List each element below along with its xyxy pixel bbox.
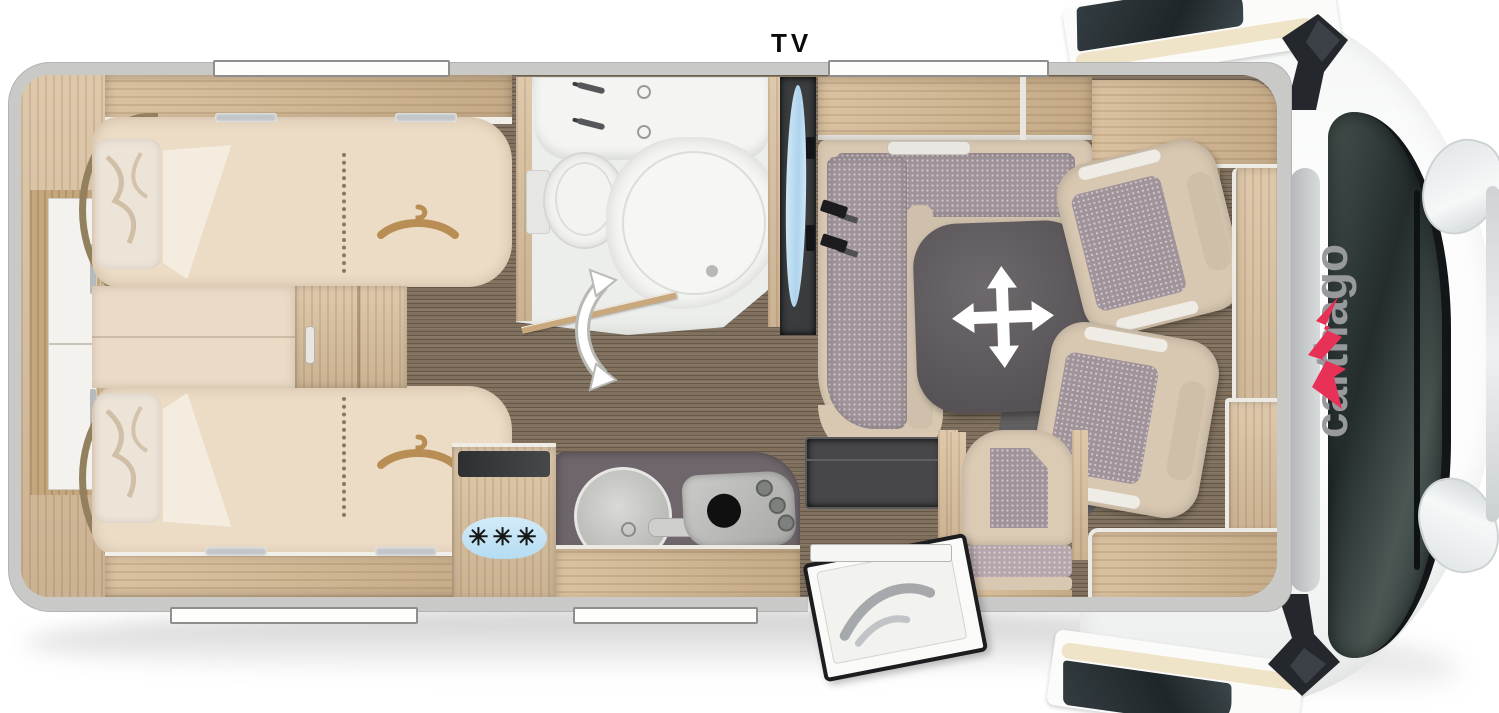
window-bedroom-top xyxy=(213,60,450,77)
sideboard-vertical xyxy=(1225,398,1277,532)
pillow-floral-pattern xyxy=(95,139,161,269)
dinette-cushion-left xyxy=(827,157,907,429)
dinette-headrest-bar xyxy=(887,141,971,155)
vanity-drain-1 xyxy=(637,85,651,99)
tv-bracket-top xyxy=(806,137,815,159)
dinette-overhead-locker xyxy=(818,77,1092,140)
entry-mat xyxy=(805,437,944,509)
vanity-drain-2 xyxy=(637,125,651,139)
kitchen-counter-front xyxy=(556,545,800,597)
kitchen-hob xyxy=(681,470,797,550)
window-bedroom-bottom xyxy=(170,607,418,624)
bed-top-reading-light-left xyxy=(215,113,277,122)
bed-bottom-reading-light-left xyxy=(205,547,267,556)
front-bumper xyxy=(1486,186,1499,522)
hob-knob-1 xyxy=(755,479,773,497)
window-dinette-top xyxy=(828,60,1049,77)
hob-burner xyxy=(706,493,742,529)
pillow-floral-pattern xyxy=(95,393,161,523)
sideboard-horizontal xyxy=(1088,528,1277,597)
brand-emblem-icon xyxy=(1300,293,1348,413)
single-seat-frame-right xyxy=(1072,430,1088,560)
hob-knob-3 xyxy=(777,514,795,532)
bed-top-split-dotline xyxy=(342,153,346,273)
habitation-interior: ✳✳✳ xyxy=(21,75,1277,597)
fridge-top-surface xyxy=(458,451,550,477)
bed-bottom-foot-shelf xyxy=(105,552,512,597)
bed-top-hanger-icon xyxy=(373,197,463,243)
dresser-divider xyxy=(357,286,360,388)
shower-tray-inner-ring xyxy=(622,151,766,295)
platform-seam xyxy=(92,336,295,338)
bed-step-platform xyxy=(92,286,295,388)
entry-step-bar xyxy=(810,544,952,562)
hob-knob-2 xyxy=(768,497,786,515)
tv-partition-wall xyxy=(768,77,780,327)
single-seat-base xyxy=(962,590,1072,597)
sink-drain xyxy=(621,522,636,537)
single-seat-pad xyxy=(990,448,1048,528)
shower-drain xyxy=(706,265,718,277)
fridge-tower: ✳✳✳ xyxy=(452,443,556,597)
freezer-snowflakes-icon: ✳✳✳ xyxy=(468,526,540,550)
entry-door-group xyxy=(798,544,978,694)
locker-divider xyxy=(1020,77,1026,140)
bed-bottom-split-dotline xyxy=(342,397,346,517)
tv-unit xyxy=(780,77,816,335)
table-move-arrow-icon xyxy=(946,260,1060,374)
tv-label: TV xyxy=(771,28,812,59)
bed-top-reading-light-right xyxy=(395,113,457,122)
motorhome-floorplan: carthago xyxy=(0,0,1499,713)
bed-bottom-reading-light-right xyxy=(375,547,437,556)
entry-mat-seam xyxy=(807,459,942,461)
bedroom-dresser xyxy=(295,286,407,388)
wardrobe-divider xyxy=(49,343,96,345)
single-seat-back xyxy=(962,430,1075,545)
dresser-handle xyxy=(305,326,315,364)
bed-bottom-hanger-icon xyxy=(373,427,463,473)
bed-top-pillow xyxy=(95,139,161,269)
door-swing-arrow-icon xyxy=(560,268,624,392)
tv-bracket-bottom xyxy=(806,225,815,251)
freezer-badge: ✳✳✳ xyxy=(462,517,547,559)
bed-bottom-pillow xyxy=(95,393,161,523)
tv-screen xyxy=(784,85,808,307)
single-seat-front-edge xyxy=(962,577,1072,590)
window-kitchen-bottom xyxy=(573,607,758,624)
single-seat-cushion xyxy=(962,545,1072,577)
